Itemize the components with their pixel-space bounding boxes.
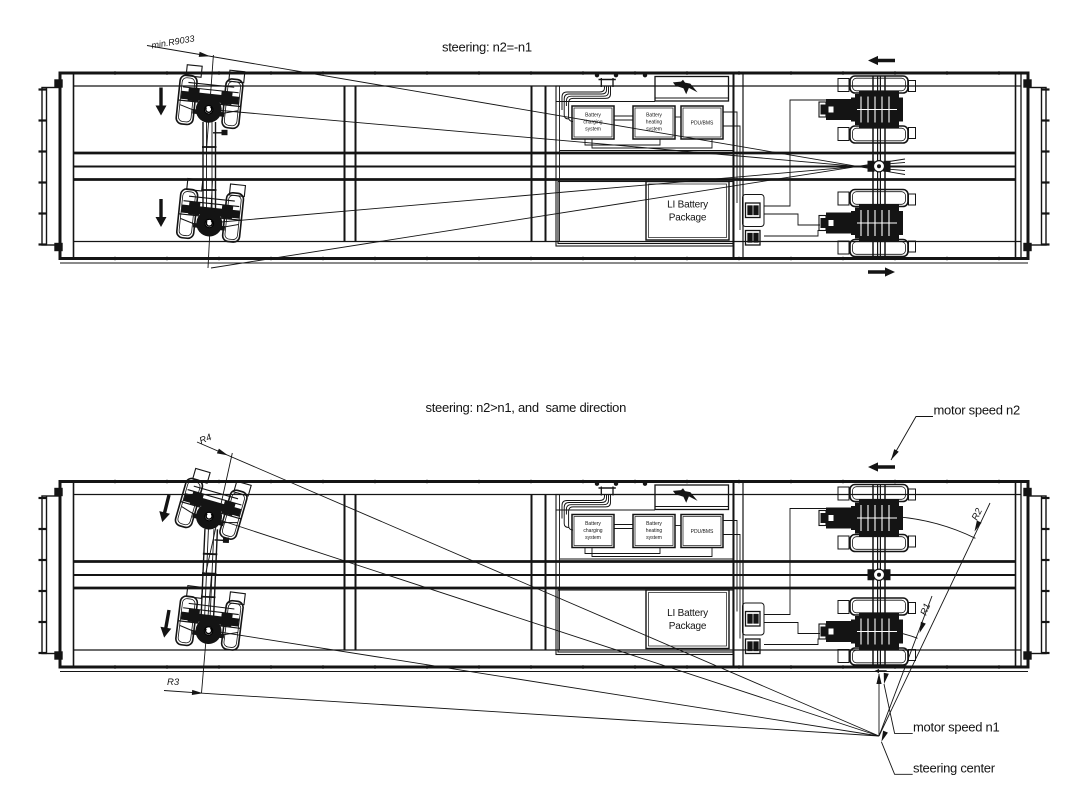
svg-text:system: system [585,535,601,541]
svg-text:steering center: steering center [913,761,996,776]
svg-text:Battery: Battery [585,113,601,119]
svg-text:heating: heating [646,120,663,126]
svg-text:charging: charging [583,528,602,534]
svg-text:LI Battery: LI Battery [667,200,708,211]
svg-text:system: system [585,127,601,133]
svg-text:Battery: Battery [646,113,662,119]
svg-text:system: system [646,535,662,541]
svg-text:Battery: Battery [646,521,662,527]
svg-text:R3: R3 [167,677,180,688]
svg-text:steering: n2=-n1: steering: n2=-n1 [442,40,532,55]
svg-text:Package: Package [669,213,707,224]
svg-text:steering: n2>n1, and same dir: steering: n2>n1, and same direction [426,400,627,415]
svg-text:motor speed n2: motor speed n2 [934,403,1020,418]
svg-text:heating: heating [646,528,663,534]
svg-text:motor speed n1: motor speed n1 [913,720,999,735]
svg-text:LI Battery: LI Battery [667,608,708,619]
svg-text:PDU/BMS: PDU/BMS [691,529,714,535]
svg-text:Battery: Battery [585,521,601,527]
svg-text:Package: Package [669,621,707,632]
svg-text:PDU/BMS: PDU/BMS [691,121,714,127]
